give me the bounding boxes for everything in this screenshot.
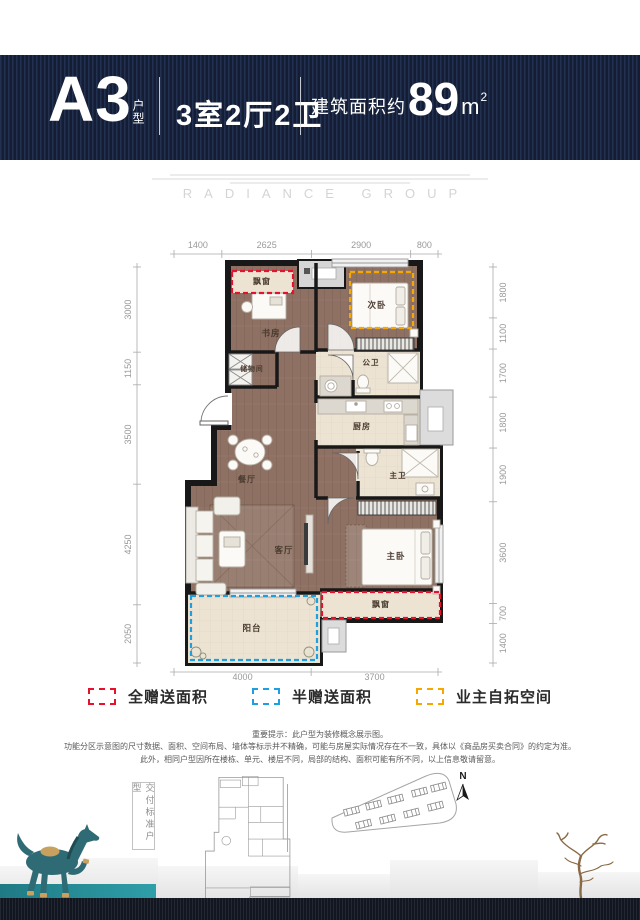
unit-code: A3: [48, 67, 132, 131]
dim-right-4: 1900: [498, 465, 508, 485]
equipment-platform-bottom: [322, 620, 346, 652]
brand-watermark: RADIANCE GROUP: [0, 186, 640, 201]
area-unit: m: [461, 96, 479, 118]
dim-right-0: 1800: [498, 282, 508, 302]
wardrobe-master-bedroom: [358, 501, 436, 515]
legend-swatch-orange: [416, 688, 444, 705]
room-label-0: 飘窗: [253, 276, 271, 286]
delivery-standard-label: 交付标准户型: [131, 783, 157, 849]
legend-label: 业主自拓空间: [456, 686, 552, 707]
dim-top-0: 1400: [188, 240, 208, 250]
room-label-6: 餐厅: [237, 474, 256, 484]
legend-item-half-gift: 半赠送面积: [252, 686, 372, 707]
dim-right-2: 1700: [498, 363, 508, 383]
room-label-1: 次卧: [367, 300, 386, 310]
header-divider: [159, 77, 160, 135]
dim-left-0: 3000: [123, 300, 133, 320]
header-divider: [300, 77, 301, 135]
disclaimer: 重要提示：此户型为装修概念展示图。 功能分区示意图的尺寸数据、面积、空间布局、墙…: [0, 729, 640, 766]
footer-divider: [287, 784, 288, 852]
disclaimer-line3: 此外，相同户型因所在楼栋、单元、楼层不同，局部的结构、面积可能有所不同，以上信息…: [0, 754, 640, 766]
dim-right-1: 1100: [498, 324, 508, 343]
legend-swatch-blue: [252, 688, 280, 705]
legend-swatch-red: [88, 688, 116, 705]
room-label-4: 公卫: [363, 358, 380, 367]
dim-right-6: 700: [498, 606, 508, 621]
dim-left-1: 1150: [123, 359, 133, 378]
room-label-3: 储物间: [239, 364, 263, 373]
legend-item-full-gift: 全赠送面积: [88, 686, 208, 707]
room-label-9: 主卧: [386, 551, 405, 561]
area-value: 89: [408, 81, 459, 119]
mini-floorplan: [196, 770, 336, 905]
disclaimer-line2: 功能分区示意图的尺寸数据、面积、空间布局、墙体等标示并不精确，可能与房屋实际情况…: [0, 741, 640, 753]
dim-bottom-1: 3700: [365, 672, 385, 680]
header-band: A3 户型 3室2厅2卫 建筑面积约 89 m 2: [0, 55, 640, 160]
fine-print-lines: [0, 172, 640, 186]
branch-decoration: [535, 832, 625, 898]
room-label-2: 书房: [261, 328, 280, 338]
dim-left-2: 3500: [123, 424, 133, 444]
legend-label: 全赠送面积: [128, 686, 208, 707]
legend-label: 半赠送面积: [292, 686, 372, 707]
equipment-platform-right: [420, 390, 453, 445]
room-label-11: 飘窗: [372, 599, 390, 609]
horse-sculpture: [4, 824, 112, 902]
footer-band: [0, 898, 640, 920]
area-group: 建筑面积约 89 m 2: [311, 55, 487, 160]
entry-door: [200, 393, 232, 425]
dim-left-4: 2050: [123, 624, 133, 644]
area-prefix: 建筑面积约: [311, 98, 406, 116]
room-label-10: 阳台: [242, 623, 261, 633]
compass-n-label: N: [452, 772, 474, 782]
dim-right-7: 1400: [498, 633, 508, 653]
legend-item-owner-expand: 业主自拓空间: [416, 686, 552, 707]
dim-top-2: 2900: [351, 240, 371, 250]
skyline-block: [390, 860, 538, 898]
floorplan-drawing: 飘窗次卧书房储物间公卫厨房餐厅主卫客厅主卧阳台飘窗 14002625290080…: [100, 235, 520, 680]
floorplan-poster: A3 户型 3室2厅2卫 建筑面积约 89 m 2 RADIANCE GROUP: [0, 0, 640, 920]
room-label-5: 厨房: [353, 421, 371, 431]
disclaimer-line1: 重要提示：此户型为装修概念展示图。: [0, 729, 640, 741]
dim-top-3: 800: [417, 240, 432, 250]
room-label-8: 客厅: [273, 545, 293, 555]
dim-right-3: 1800: [498, 413, 508, 433]
compass-needle-icon: [455, 783, 471, 801]
legend: 全赠送面积 半赠送面积 业主自拓空间: [0, 686, 640, 707]
dim-bottom-0: 4000: [233, 672, 253, 680]
layout-summary: 3室2厅2卫: [176, 92, 323, 134]
delivery-standard-box: 交付标准户型: [132, 782, 155, 850]
unit-code-suffix: 户型: [130, 99, 145, 125]
wardrobe-second-bedroom: [356, 338, 414, 350]
dim-right-5: 3600: [498, 543, 508, 563]
compass: N: [452, 772, 474, 801]
dim-top-1: 2625: [257, 240, 277, 250]
dim-left-3: 4250: [123, 534, 133, 554]
room-label-7: 主卫: [390, 470, 407, 480]
area-unit-sup: 2: [481, 91, 488, 103]
